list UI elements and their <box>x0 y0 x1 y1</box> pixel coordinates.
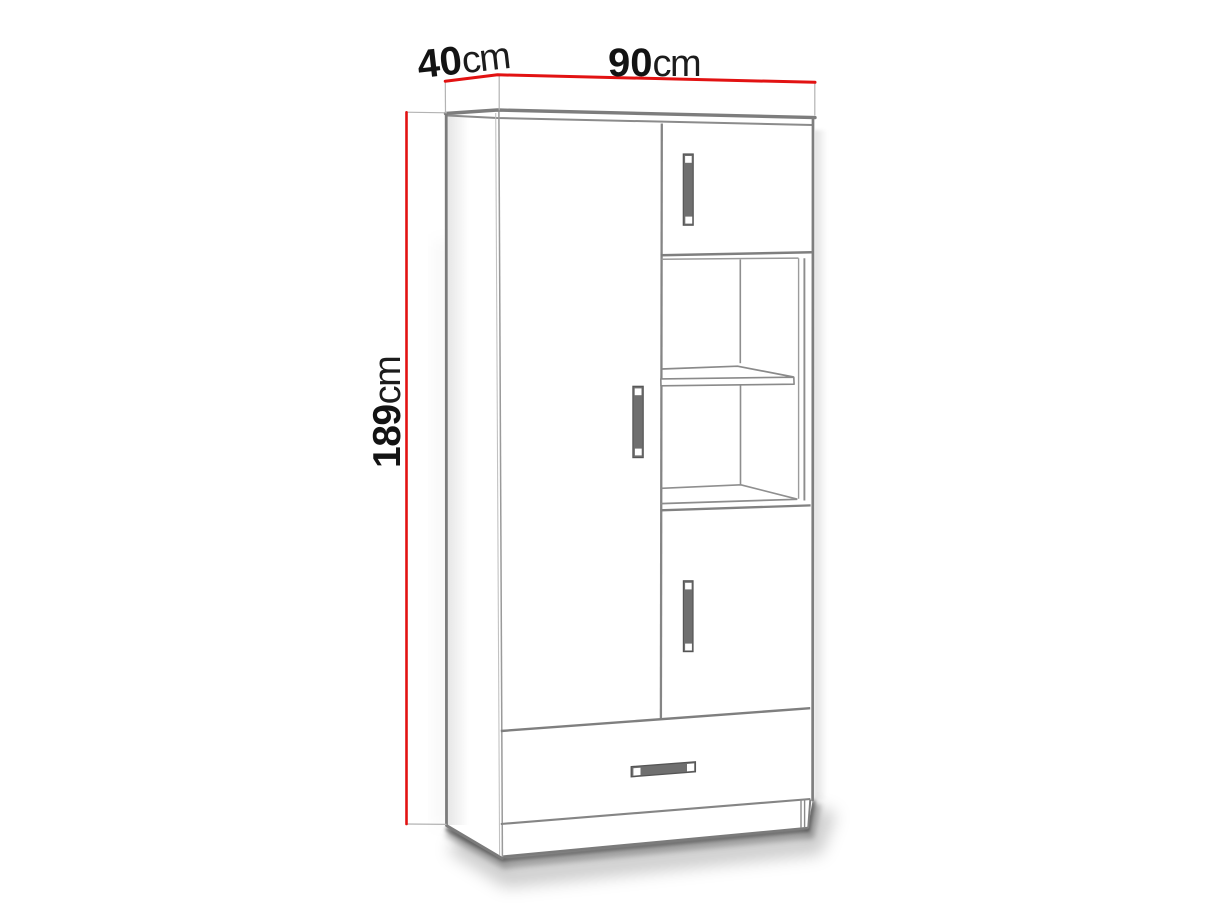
svg-text:90cm: 90cm <box>608 41 700 85</box>
svg-text:189cm: 189cm <box>366 357 409 468</box>
